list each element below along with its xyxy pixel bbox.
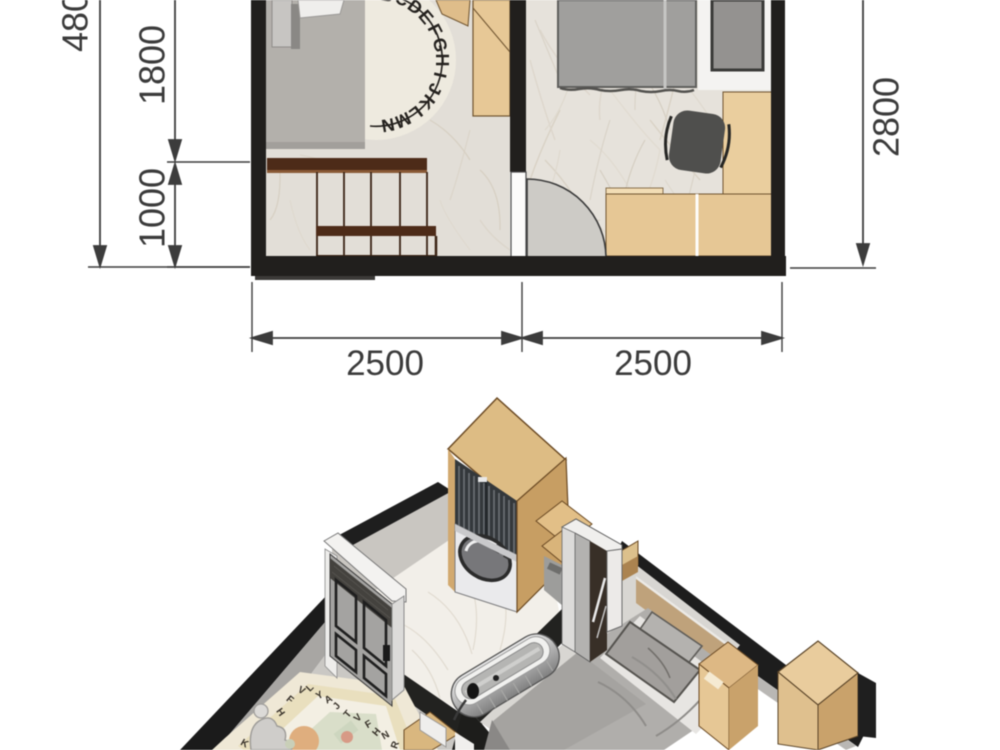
svg-text:1000: 1000 bbox=[132, 168, 173, 248]
svg-text:1800: 1800 bbox=[132, 25, 173, 105]
svg-text:2800: 2800 bbox=[866, 77, 907, 157]
svg-text:H: H bbox=[432, 54, 452, 67]
svg-text:4800: 4800 bbox=[55, 0, 96, 52]
svg-text:2500: 2500 bbox=[346, 344, 424, 383]
svg-text:2500: 2500 bbox=[614, 344, 692, 383]
